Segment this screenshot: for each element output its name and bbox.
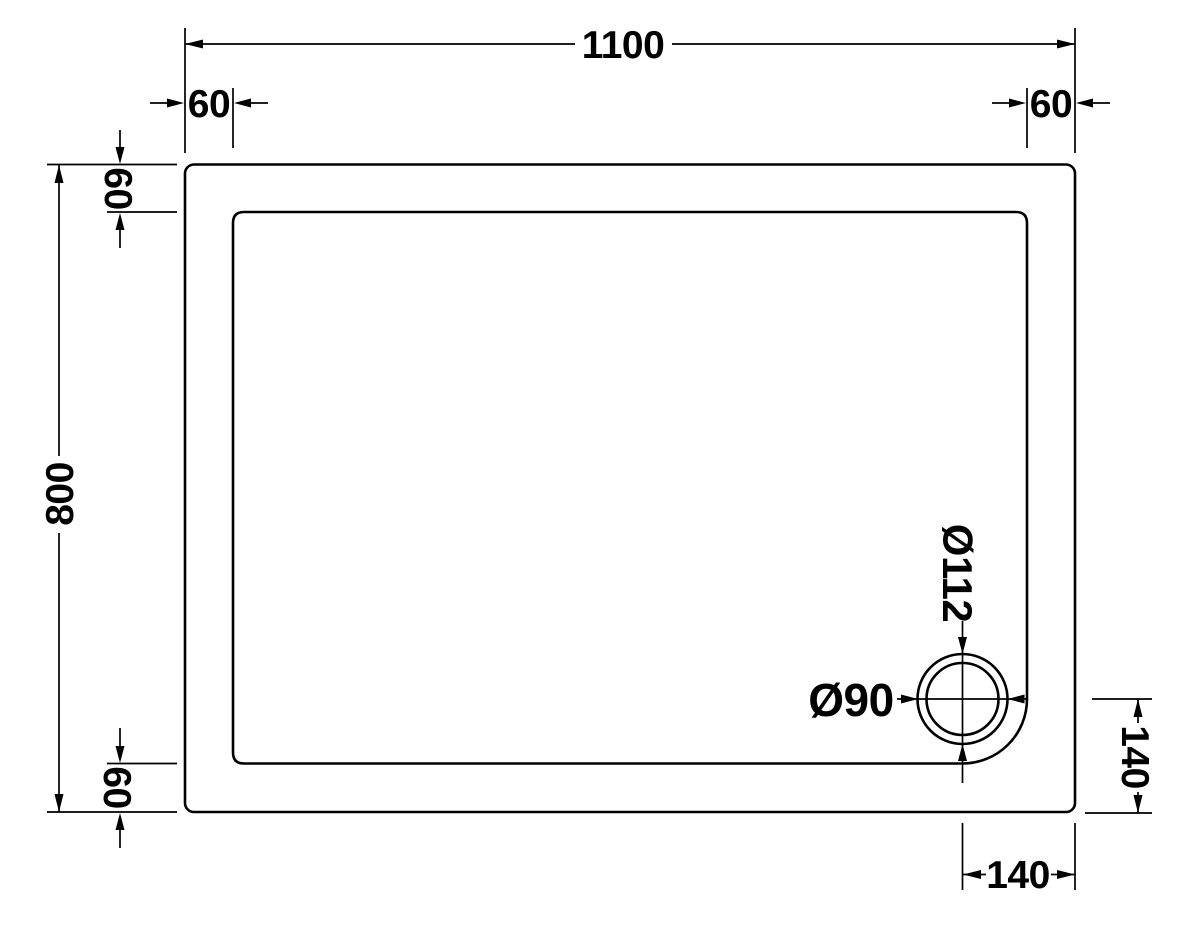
technical-drawing-canvas: 1100 60 60 800 — [0, 0, 1200, 943]
tray-outline — [185, 165, 1075, 813]
dim-waste-offset-bottom: 140 — [1085, 699, 1156, 813]
dim-overall-height: 800 — [39, 165, 177, 813]
dim-waste-offset-right: 140 — [963, 823, 1076, 897]
dim-flange-left-top-label: 60 — [96, 167, 139, 209]
dim-flange-top-right: 60 — [992, 83, 1110, 148]
dim-overall-height-label: 800 — [39, 462, 82, 526]
dim-overall-width: 1100 — [185, 24, 1075, 153]
dim-flange-top-right-label: 60 — [1030, 83, 1072, 126]
dim-waste-inner-diameter-label: Ø90 — [808, 674, 893, 726]
dim-overall-width-label: 1100 — [582, 24, 665, 67]
dim-flange-left-bottom: 60 — [95, 728, 177, 848]
dim-waste-offset-right-label: 140 — [986, 854, 1050, 897]
dim-flange-top-left: 60 — [150, 83, 268, 148]
tray-inner-edge — [233, 212, 1027, 764]
dim-flange-left-bottom-label: 60 — [95, 766, 138, 808]
dim-waste-offset-bottom-label: 140 — [1113, 725, 1156, 789]
dim-flange-left-top: 60 — [96, 130, 177, 248]
dim-flange-top-left-label: 60 — [188, 83, 230, 126]
dim-waste-outer-diameter-label: Ø112 — [934, 524, 981, 622]
shower-tray-drawing: 1100 60 60 800 — [0, 0, 1200, 943]
